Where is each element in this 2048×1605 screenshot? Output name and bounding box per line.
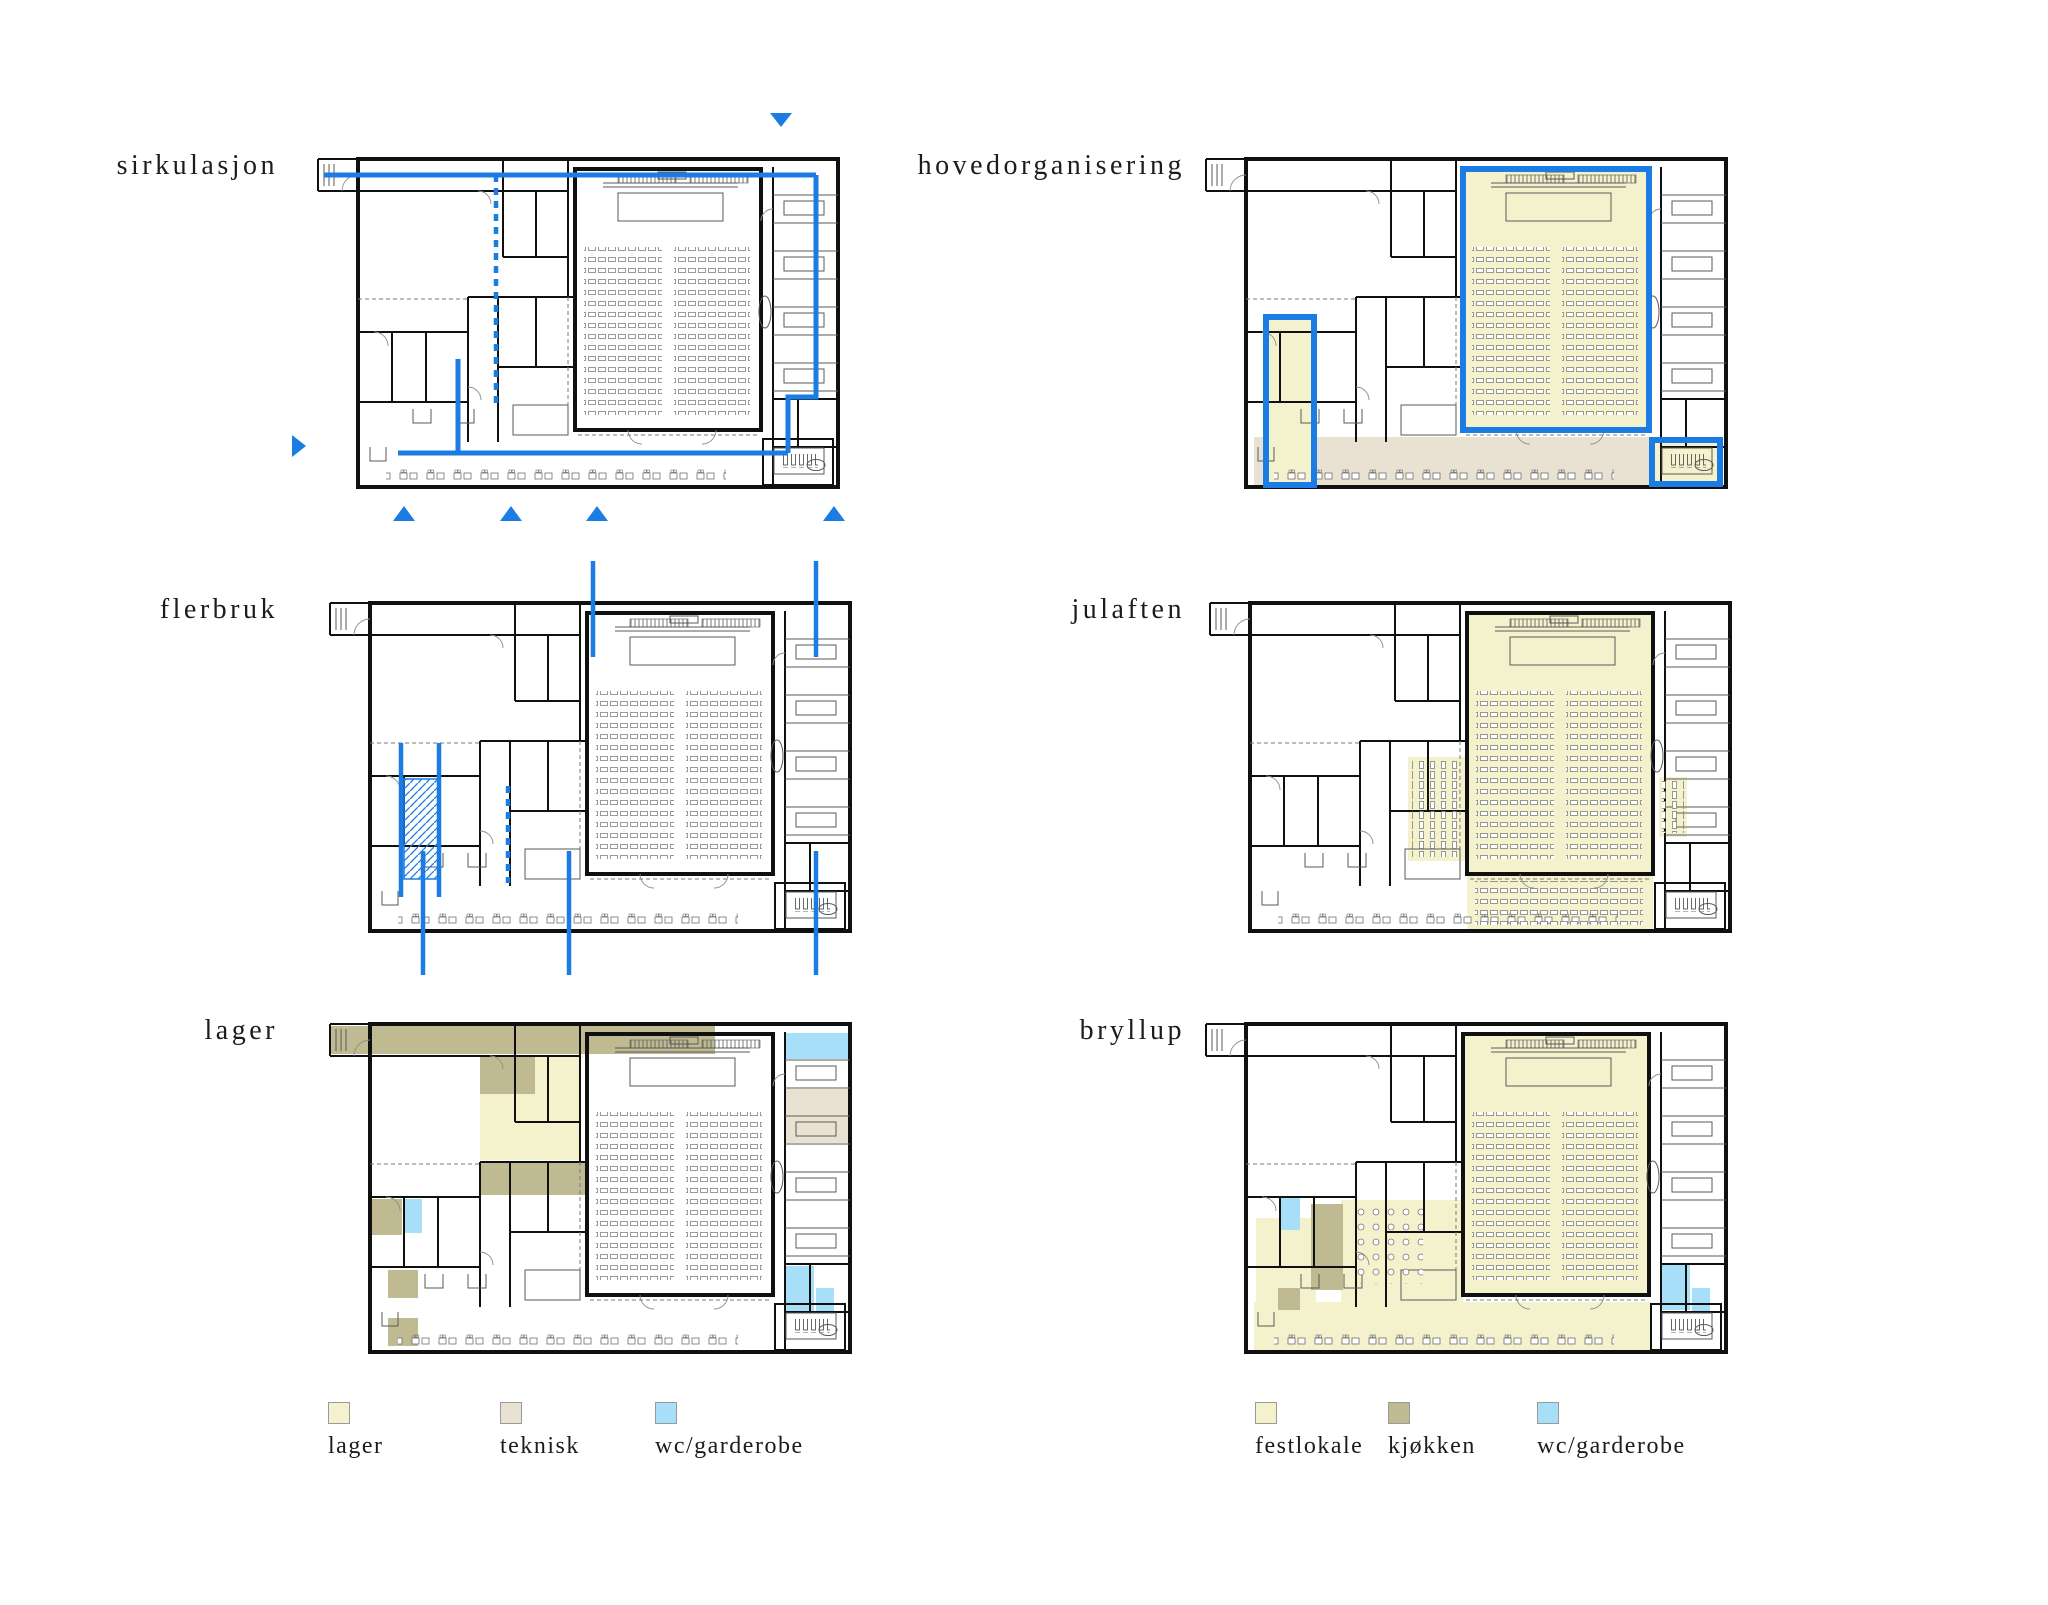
banquet-tables <box>1351 1208 1423 1284</box>
legend-swatch-lager <box>328 1402 350 1424</box>
plan-title-flerbruk: flerbruk <box>58 594 278 626</box>
floor-plan-sirkulasjon <box>318 147 848 499</box>
legend-label: wc/garderobe <box>655 1433 804 1460</box>
legend-swatch-kjokken <box>1388 1402 1410 1424</box>
legend-item: festlokale <box>1255 1402 1363 1460</box>
legend-swatch-festlokale <box>1255 1402 1277 1424</box>
legend-item: lager <box>328 1402 383 1460</box>
floor-plan-hovedorganisering <box>1206 147 1736 499</box>
legend-swatch-wc-garderobe <box>655 1402 677 1424</box>
plan-title-hovedorganisering: hovedorganisering <box>835 150 1185 182</box>
plan-title-julaften: julaften <box>835 594 1185 626</box>
legend-label: kjøkken <box>1388 1433 1476 1460</box>
diagram-page: sirkulasjon hovedorganisering flerbruk j… <box>0 0 2048 1605</box>
legend-label: lager <box>328 1433 383 1460</box>
legend-swatch-teknisk <box>500 1402 522 1424</box>
legend-item: kjøkken <box>1388 1402 1476 1460</box>
legend-label: wc/garderobe <box>1537 1433 1686 1460</box>
legend-item: teknisk <box>500 1402 580 1460</box>
plan-title-bryllup: bryllup <box>835 1015 1185 1047</box>
plan-title-sirkulasjon: sirkulasjon <box>58 150 278 182</box>
legend-swatch-wc-garderobe <box>1537 1402 1559 1424</box>
legend-label: teknisk <box>500 1433 580 1460</box>
plan-title-lager: lager <box>58 1015 278 1047</box>
legend-label: festlokale <box>1255 1433 1363 1460</box>
legend-item: wc/garderobe <box>1537 1402 1686 1460</box>
floor-plan-bryllup <box>1206 1012 1736 1364</box>
floor-plan-julaften <box>1210 591 1740 943</box>
floor-plan-flerbruk <box>330 591 860 943</box>
floor-plan-lager <box>330 1012 860 1364</box>
legend-item: wc/garderobe <box>655 1402 804 1460</box>
